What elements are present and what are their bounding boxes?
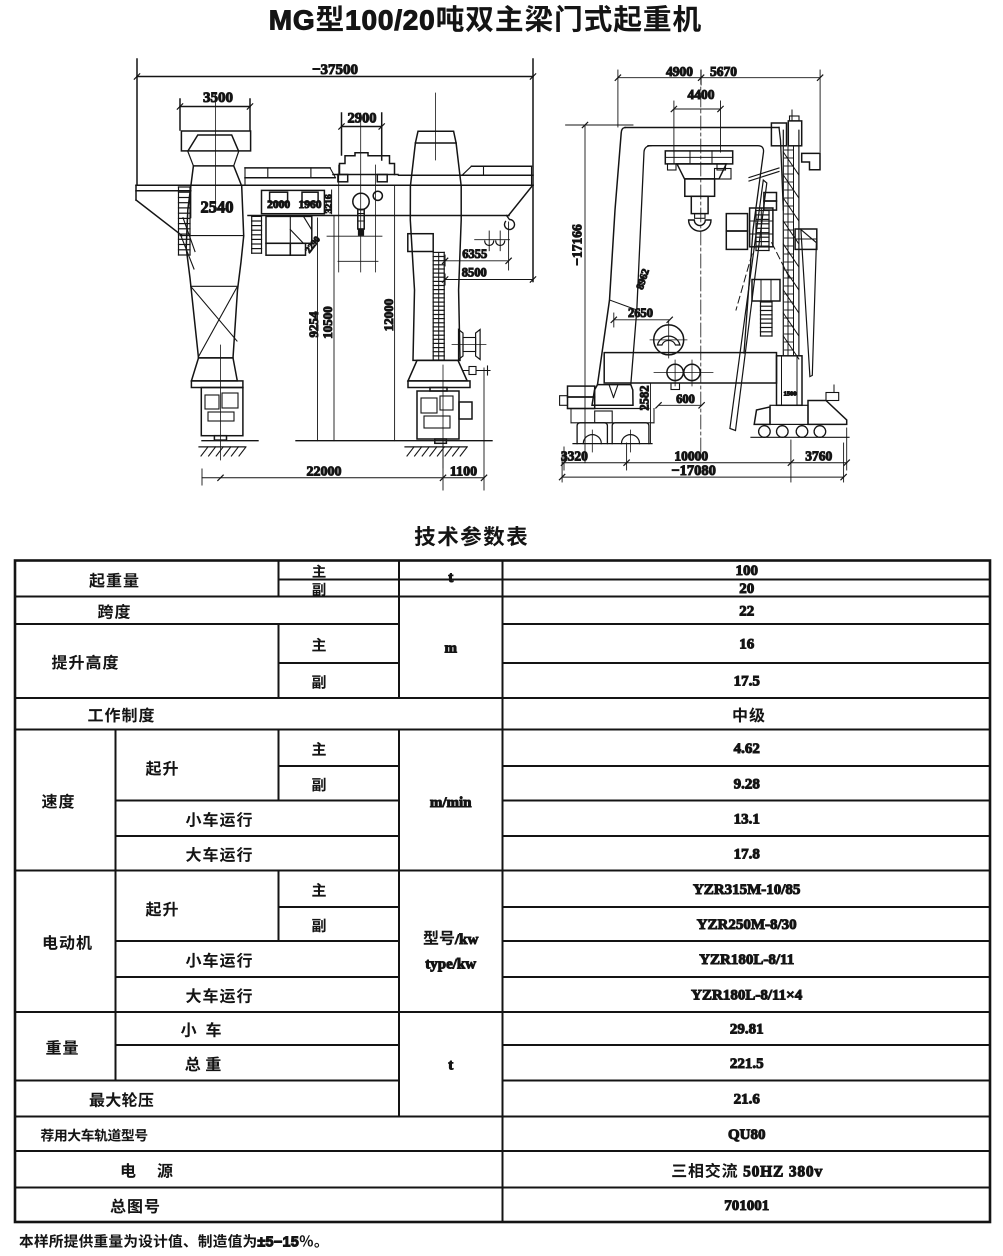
svg-text:QU80: QU80 (728, 1127, 766, 1143)
svg-text:50HZ 380v: 50HZ 380v (738, 1164, 823, 1181)
svg-text:±5−15: ±5−15 (257, 1235, 299, 1251)
svg-text:YZR180L-8/11×4: YZR180L-8/11×4 (691, 988, 803, 1004)
svg-text:12000: 12000 (381, 299, 396, 332)
svg-text:2000: 2000 (267, 199, 290, 211)
svg-text:t: t (448, 1057, 453, 1073)
svg-text:9.28: 9.28 (734, 776, 760, 792)
svg-text:701001: 701001 (724, 1198, 769, 1214)
svg-text:4.62: 4.62 (734, 741, 760, 757)
svg-text:3500: 3500 (203, 90, 233, 106)
svg-text:100: 100 (735, 563, 758, 579)
svg-text:20: 20 (739, 581, 754, 597)
svg-text:6355: 6355 (462, 247, 487, 261)
svg-text:100/20: 100/20 (345, 5, 435, 36)
svg-text:10500: 10500 (320, 306, 335, 339)
svg-text:17.5: 17.5 (734, 674, 760, 690)
svg-text:m: m (444, 640, 457, 656)
svg-text:8962: 8962 (635, 268, 652, 291)
svg-text:1500: 1500 (784, 391, 797, 398)
svg-text:13.1: 13.1 (734, 811, 760, 827)
svg-text:17.8: 17.8 (734, 846, 760, 862)
svg-text:m/min: m/min (430, 795, 472, 811)
svg-text:2900: 2900 (348, 110, 377, 126)
svg-text:t: t (448, 570, 453, 586)
svg-text:YZR180L-8/11: YZR180L-8/11 (699, 952, 794, 968)
svg-text:8500: 8500 (462, 266, 487, 280)
svg-text:type/kw: type/kw (425, 957, 476, 973)
svg-text:9254: 9254 (306, 311, 321, 338)
svg-text:4900: 4900 (666, 64, 693, 79)
svg-text:600: 600 (676, 392, 695, 406)
svg-text:22000: 22000 (307, 464, 342, 479)
svg-text:YZR250M-8/30: YZR250M-8/30 (697, 917, 797, 933)
svg-text:2290: 2290 (303, 234, 322, 255)
svg-text:−17166: −17166 (570, 224, 585, 266)
svg-text:MG: MG (269, 5, 316, 36)
svg-text:2540: 2540 (201, 198, 234, 217)
svg-text:221.5: 221.5 (730, 1056, 764, 1072)
svg-text:16: 16 (739, 637, 755, 653)
svg-text:2582: 2582 (638, 386, 652, 411)
svg-text:5670: 5670 (710, 64, 737, 79)
svg-text:3320: 3320 (561, 449, 588, 464)
svg-text:22: 22 (739, 603, 754, 619)
svg-text:/kw: /kw (454, 932, 479, 948)
svg-text:−37500: −37500 (312, 62, 358, 78)
svg-text:3216: 3216 (325, 194, 335, 213)
svg-text:29.81: 29.81 (730, 1022, 764, 1038)
svg-text:1100: 1100 (450, 464, 477, 479)
svg-text:10000: 10000 (674, 449, 708, 464)
svg-text:YZR315M-10/85: YZR315M-10/85 (693, 882, 801, 898)
svg-text:−17080: −17080 (671, 463, 716, 479)
svg-text:21.6: 21.6 (734, 1092, 761, 1108)
svg-text:3760: 3760 (805, 449, 832, 464)
svg-text:2650: 2650 (628, 306, 653, 320)
svg-text:1960: 1960 (299, 199, 322, 211)
